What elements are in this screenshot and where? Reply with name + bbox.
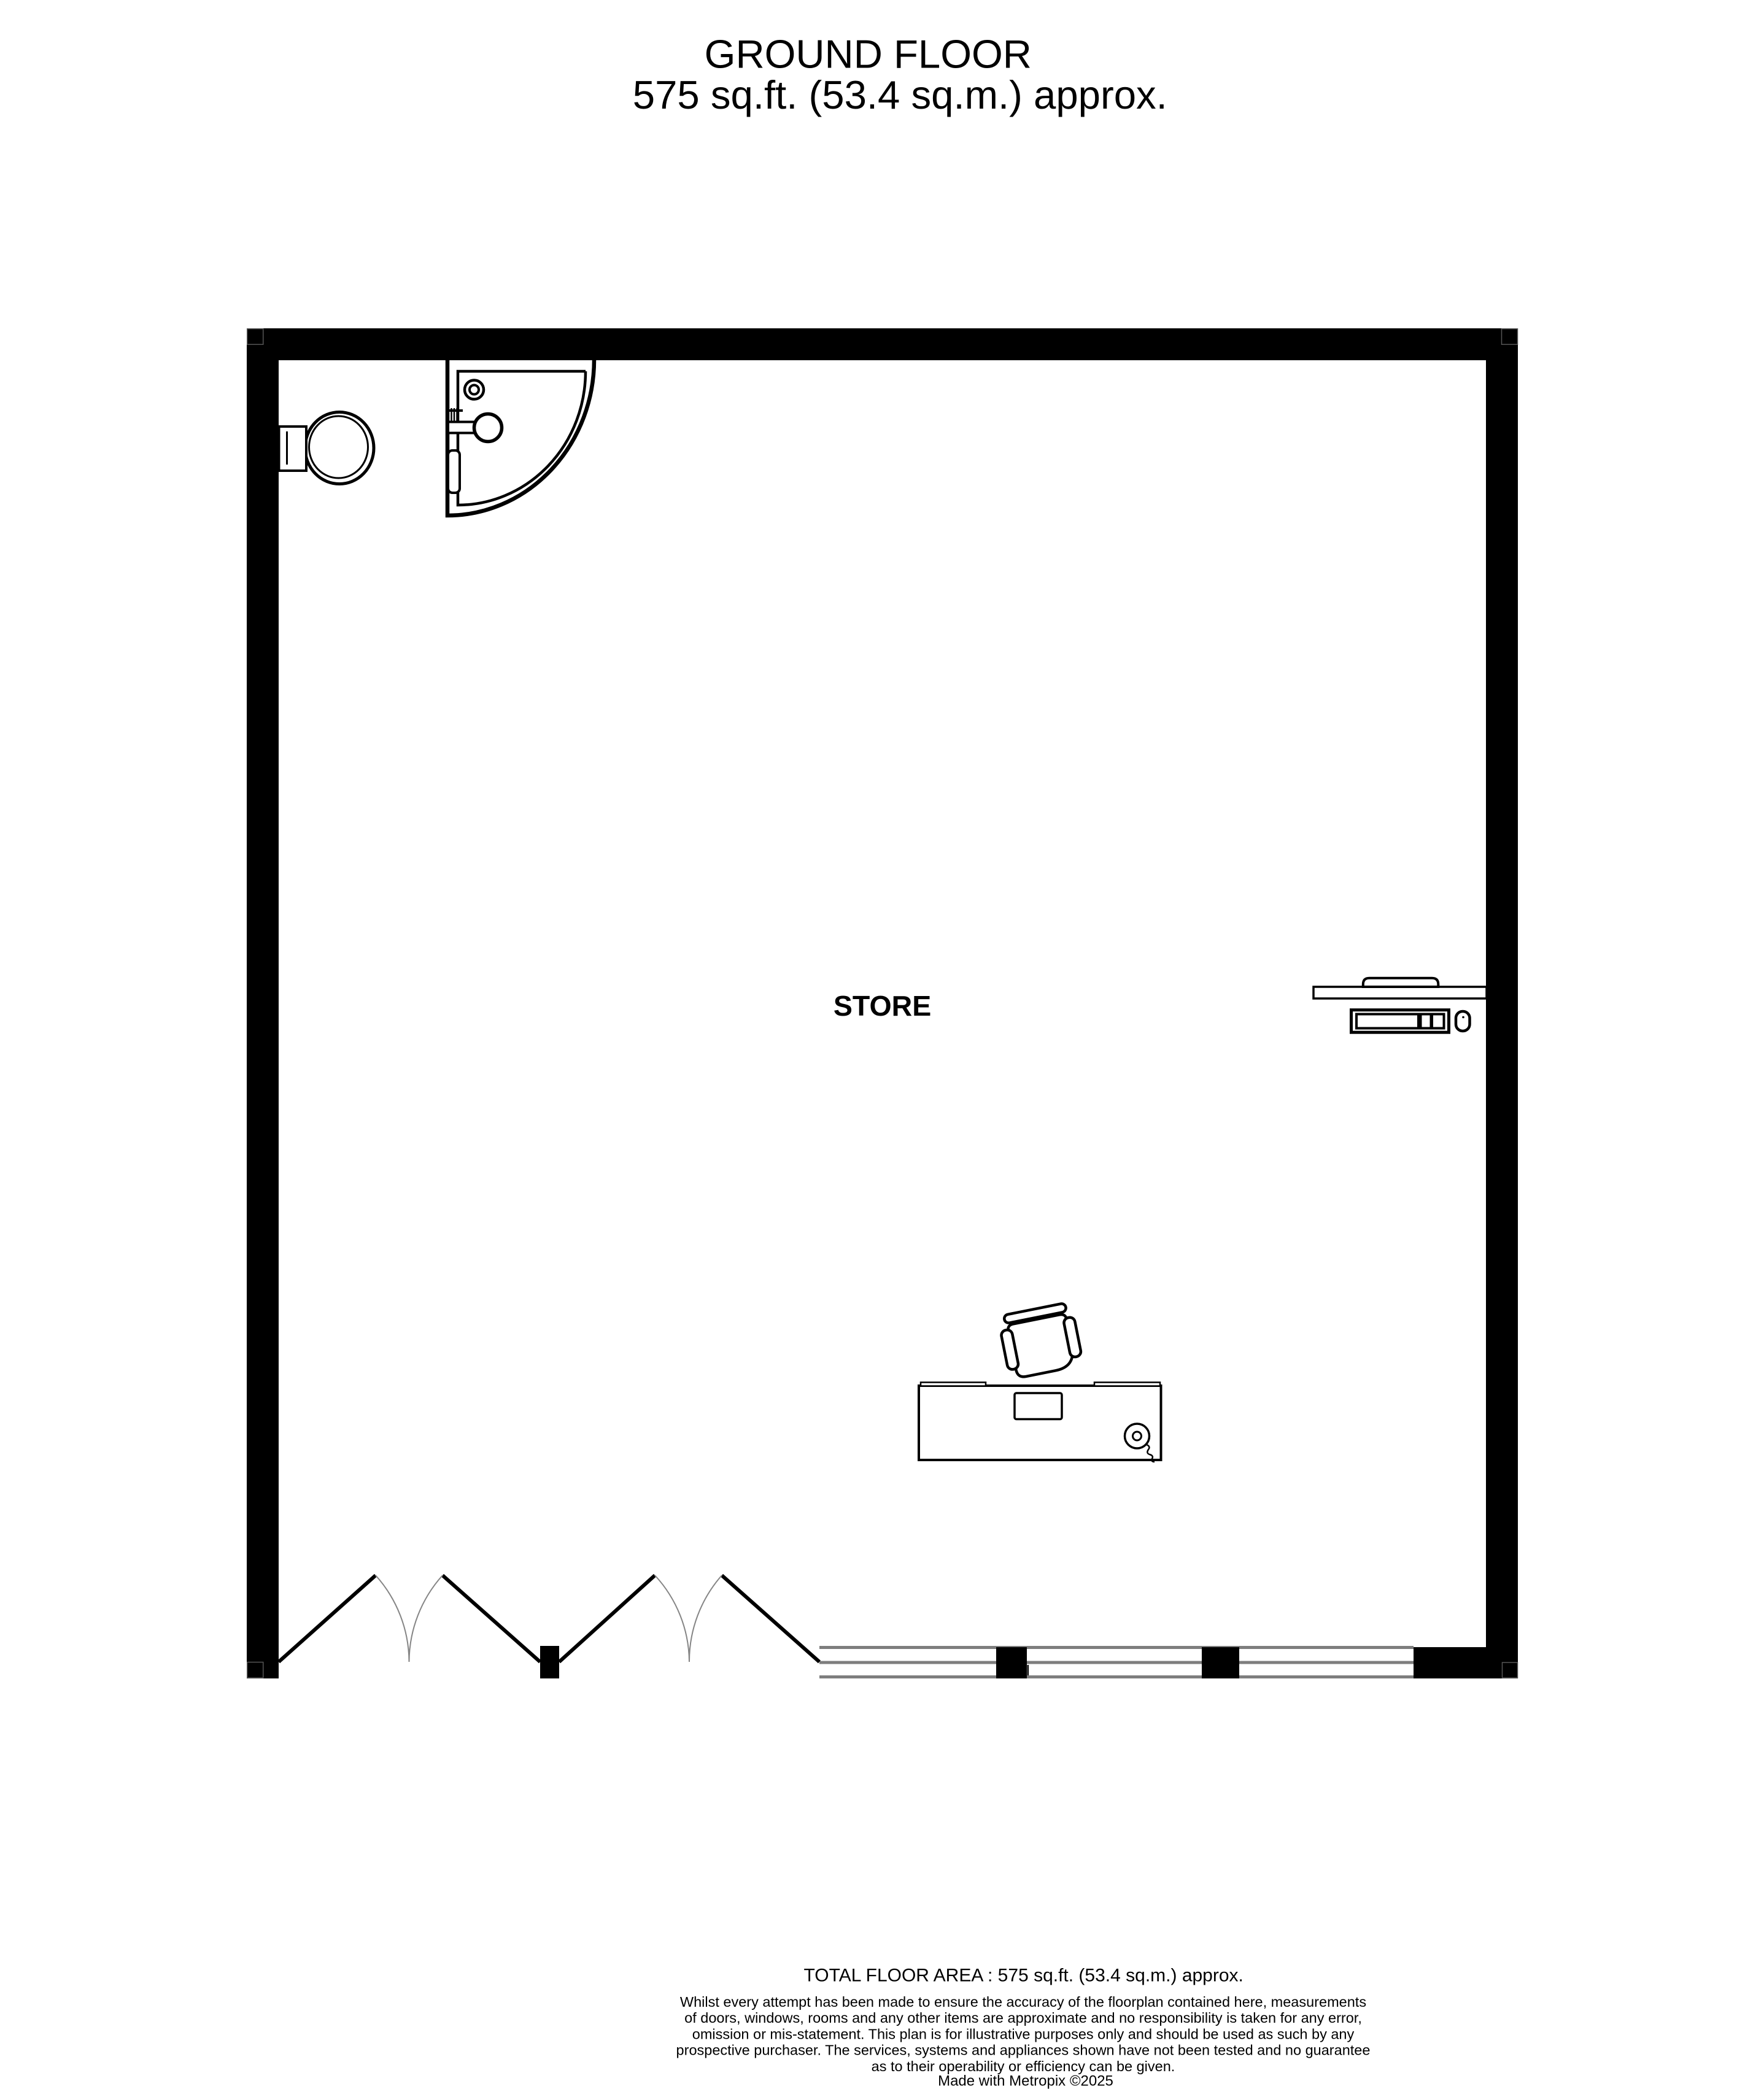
svg-text:Made with Metropix ©2025: Made with Metropix ©2025 xyxy=(938,2072,1113,2089)
svg-text:TOTAL FLOOR AREA : 575 sq.ft.: TOTAL FLOOR AREA : 575 sq.ft. (53.4 sq.m… xyxy=(803,1966,1243,1986)
svg-text:GROUND FLOOR: GROUND FLOOR xyxy=(705,32,1032,77)
svg-text:Whilst every attempt has been: Whilst every attempt has been made to en… xyxy=(680,1994,1366,2010)
svg-text:as to their operability or eff: as to their operability or efficiency ca… xyxy=(872,2058,1175,2074)
svg-text:omission or mis-statement. Thi: omission or mis-statement. This plan is … xyxy=(692,2026,1355,2042)
svg-text:575 sq.ft. (53.4 sq.m.) approx: 575 sq.ft. (53.4 sq.m.) approx. xyxy=(633,72,1167,117)
svg-text:STORE: STORE xyxy=(834,990,931,1022)
svg-text:of doors, windows, rooms and a: of doors, windows, rooms and any other i… xyxy=(684,2010,1362,2026)
svg-text:prospective purchaser. The ser: prospective purchaser. The services, sys… xyxy=(676,2042,1371,2058)
